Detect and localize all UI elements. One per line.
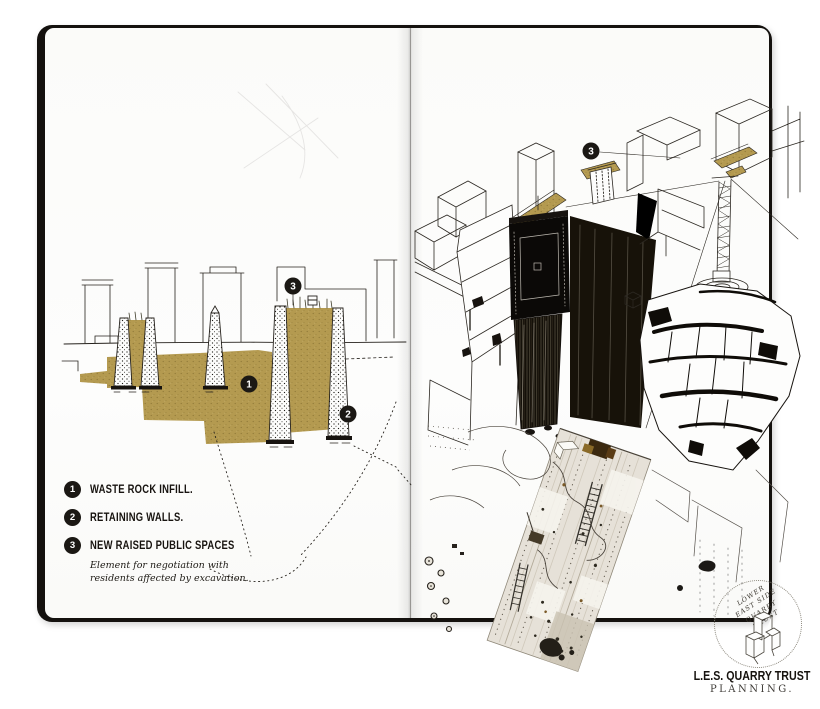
trust-title: L.E.S. QUARRY TRUST	[690, 668, 815, 683]
footer-brand: L.E.S. QUARRY TRUST PLANNING.	[676, 668, 820, 695]
legend-label-1: WASTE ROCK INFILL.	[90, 484, 193, 496]
seal-cubes-icon	[734, 610, 786, 666]
legend-badge-1-icon: 1	[64, 481, 81, 498]
legend-label-3: NEW RAISED PUBLIC SPACES	[90, 540, 235, 552]
legend-note-line-2: residents affected by excavation.	[90, 573, 266, 586]
legend-note: Element for negotiation with residents a…	[90, 560, 266, 585]
legend-note-line-1: Element for negotiation with	[90, 560, 266, 573]
legend-label-2: RETAINING WALLS.	[90, 512, 183, 524]
legend-item-waste-rock: 1 WASTE ROCK INFILL.	[64, 481, 266, 498]
page-gutter-line	[410, 28, 411, 618]
legend-badge-3-icon: 3	[64, 537, 81, 554]
trust-seal: LOWER EAST SIDE QUARRY TRUST	[714, 580, 802, 668]
trust-subtitle: PLANNING.	[676, 684, 820, 695]
sketchbook-scene: 1 2 3	[0, 0, 820, 709]
legend-item-retaining-walls: 2 RETAINING WALLS.	[64, 509, 266, 526]
legend-item-public-spaces: 3 NEW RAISED PUBLIC SPACES	[64, 537, 266, 554]
legend: 1 WASTE ROCK INFILL. 2 RETAINING WALLS. …	[64, 481, 266, 585]
legend-badge-2-icon: 2	[64, 509, 81, 526]
